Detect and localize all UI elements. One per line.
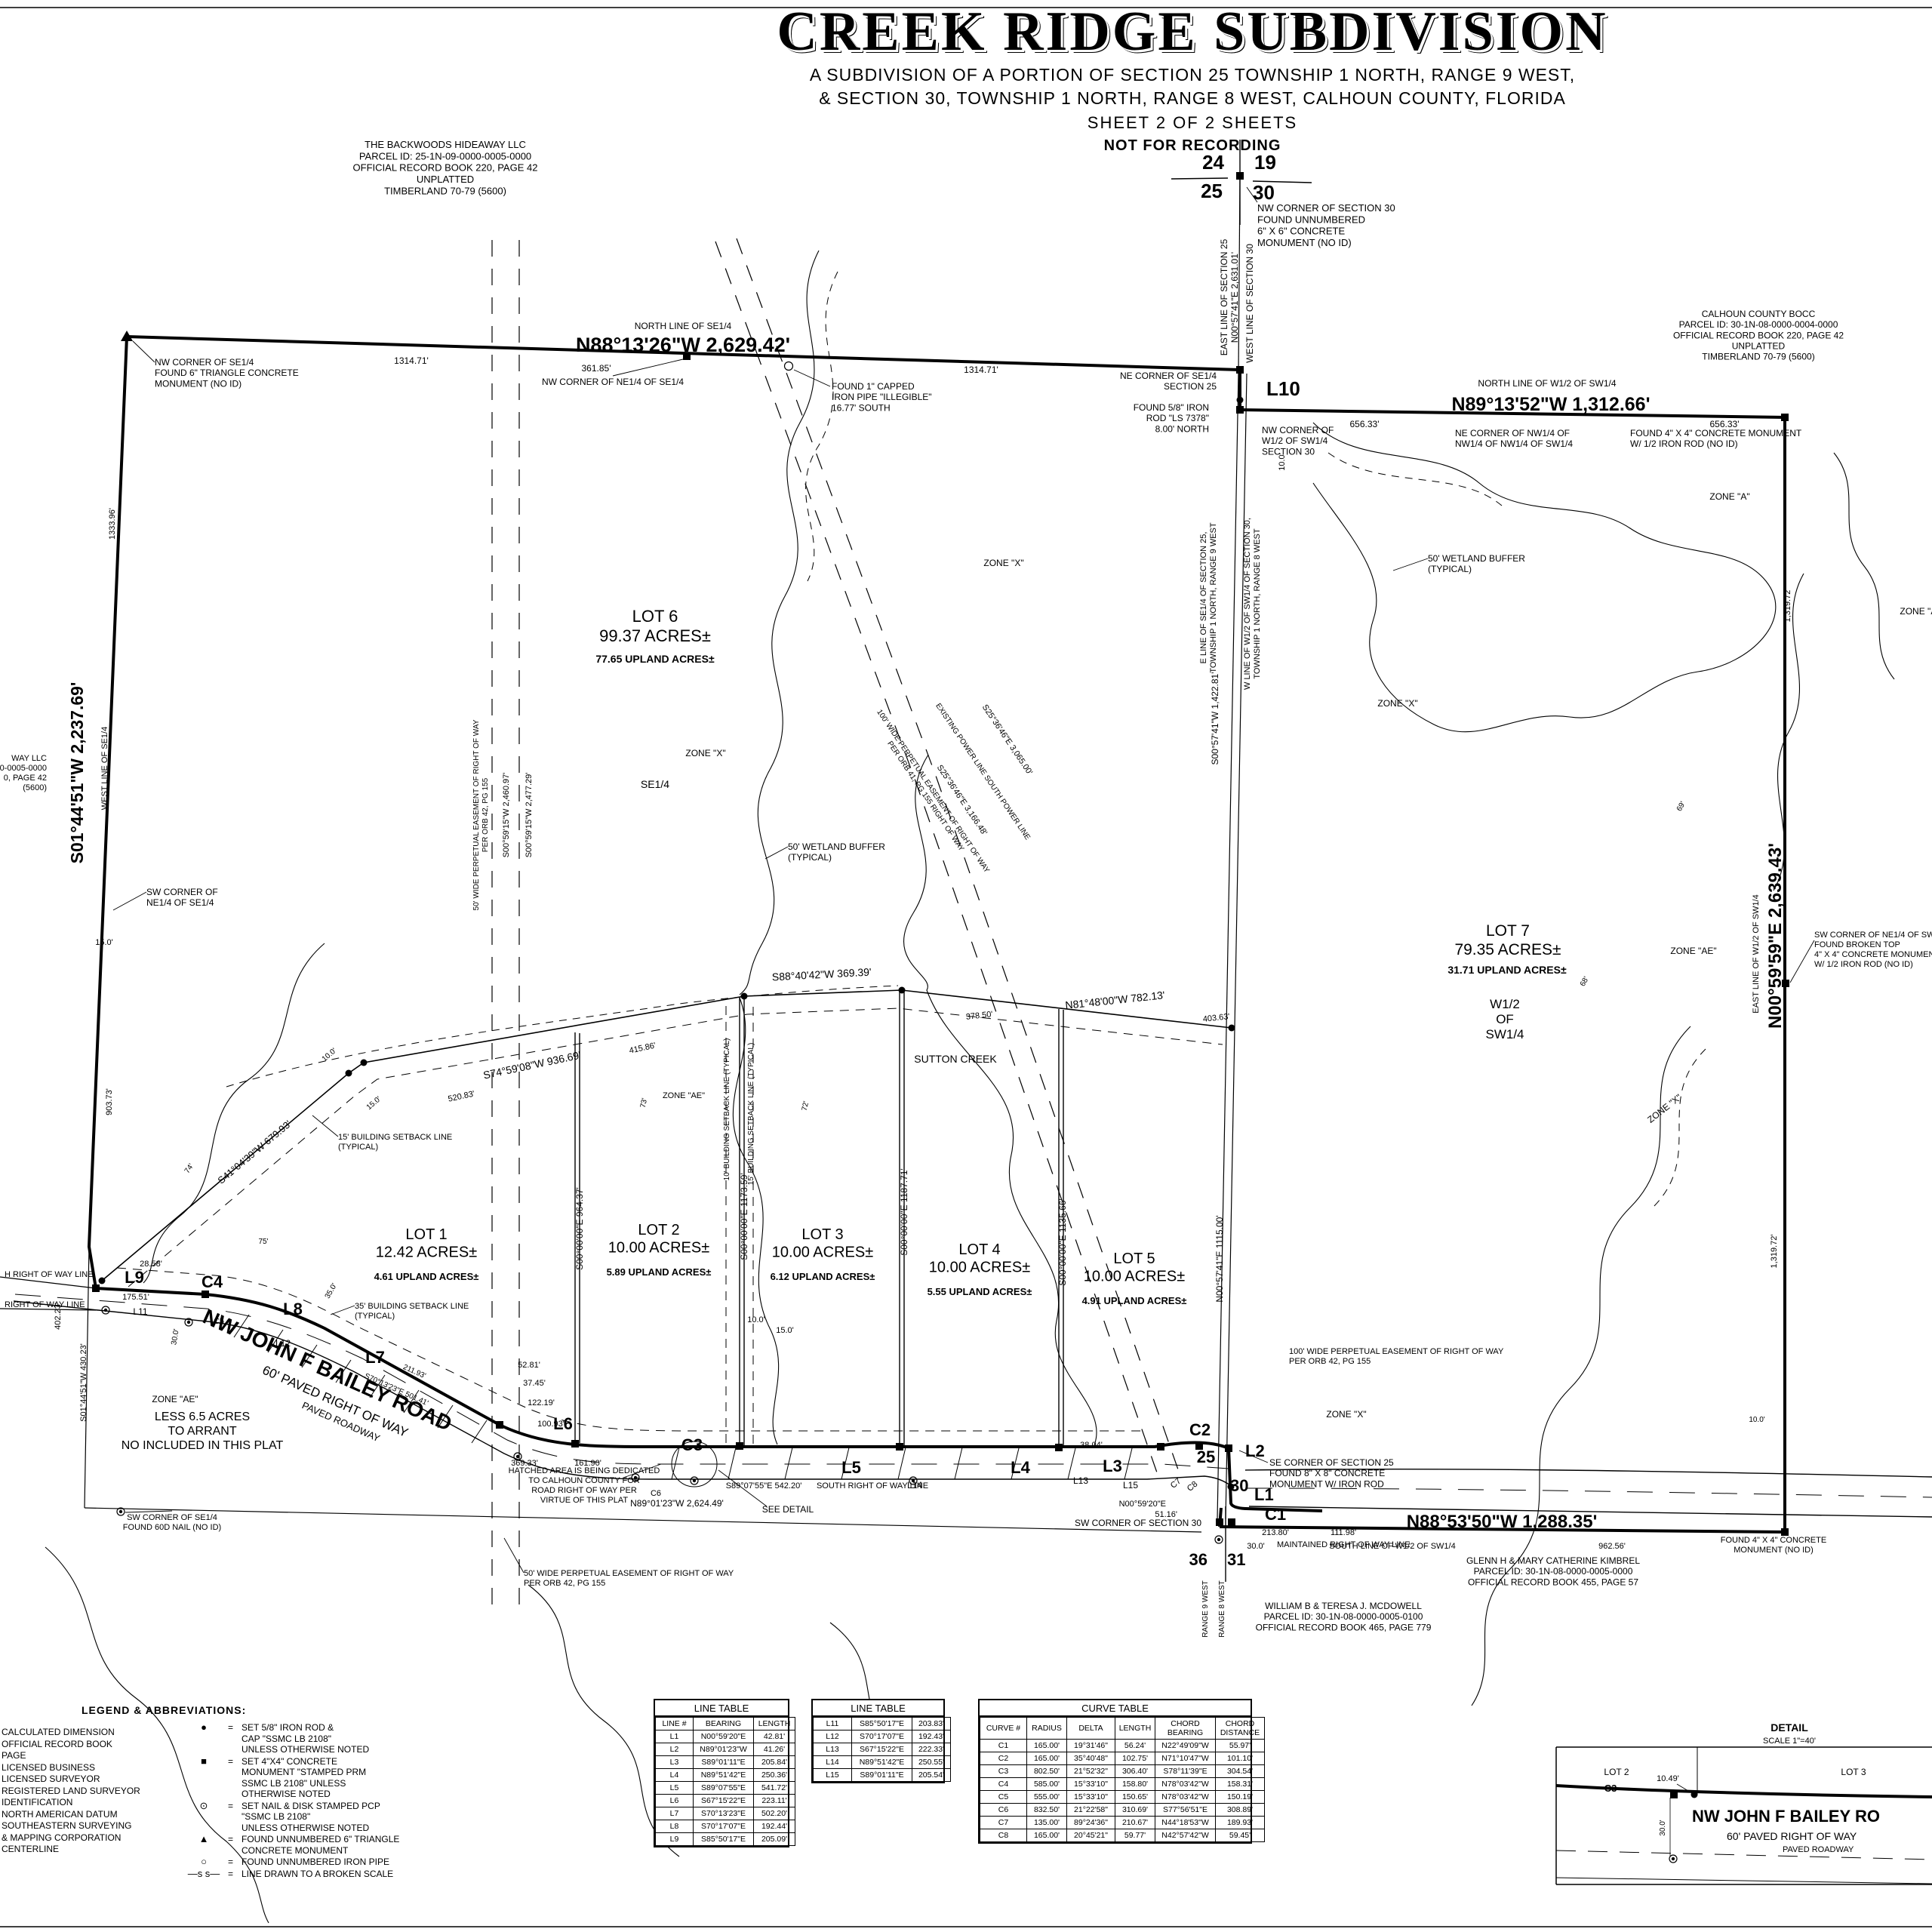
map-label: 74' [183, 1162, 196, 1175]
map-label-line: 361.85' [582, 363, 611, 374]
tr: L8S70°17'07"E192.44' [656, 1820, 795, 1833]
map-label-line: UNPLATTED [1732, 340, 1786, 351]
table-cell: 158.31' [1216, 1778, 1265, 1791]
tr: L6S67°15'22"E223.11' [656, 1795, 795, 1807]
map-label-line: 903.73' [105, 1088, 114, 1115]
map-label-line: TIMBERLAND 70-79 (5600) [1702, 352, 1814, 362]
path [765, 847, 788, 859]
map-label-line: SW CORNER OF SE1/4 [127, 1513, 217, 1522]
map-label: S01°44'51"W 430.23' [79, 1343, 88, 1422]
map-label: NW CORNER OF SECTION 30FOUND UNNUMBERED6… [1257, 202, 1395, 248]
map-labels: THE BACKWOODS HIDEAWAY LLCPARCEL ID: 25-… [0, 139, 1932, 1854]
tr: C4585.00'15°33'10"158.80'N78°03'42"W158.… [980, 1778, 1265, 1791]
map-label: LOT 779.35 ACRES± [1454, 922, 1561, 958]
map-label-line: 10.00 ACRES± [772, 1244, 873, 1261]
concrete-monument-icon [1228, 1518, 1235, 1526]
map-label-line: N00°57'41"E 2,631.01' [1229, 252, 1240, 343]
map-label: 4.61 UPLAND ACRES± [374, 1271, 479, 1282]
map-label-line: 16.77' SOUTH [832, 402, 891, 413]
table-header-cell: RADIUS [1027, 1718, 1067, 1740]
table-cell: L14 [814, 1756, 852, 1769]
table-cell: 223.11' [754, 1795, 795, 1807]
map-label-line: 50' WIDE PERPETUAL EASEMENT OF RIGHT OF … [472, 719, 481, 910]
path [1393, 558, 1428, 571]
map-label: 72' [801, 1100, 811, 1112]
tr: C6832.50'21°22'58"310.69'S77°56'51"E308.… [980, 1804, 1265, 1817]
table-cell: L8 [656, 1820, 694, 1833]
table-cell: 205.09' [754, 1833, 795, 1846]
legend-symbol-text: LINE DRAWN TO A BROKEN SCALE [241, 1869, 451, 1880]
map-label: L12 [275, 1338, 291, 1349]
map-label-line: 4.91 UPLAND ACRES± [1082, 1295, 1187, 1306]
map-label-line: L11 [133, 1306, 147, 1317]
map-label: FOUND 4" X 4" CONCRETE MONUMENTW/ 1/2 IR… [1630, 428, 1802, 449]
tr: L2N89°01'23"W41.26' [656, 1743, 795, 1756]
tr: L7S70°13'23"E502.20' [656, 1807, 795, 1820]
map-label-line: NE1/4 OF SE1/4 [146, 897, 214, 908]
legend-symbol-text: SET NAIL & DISK STAMPED PCP "SSMC LB 210… [241, 1801, 451, 1834]
map-label: 15' BUILDING SETBACK LINE(TYPICAL) [338, 1133, 452, 1152]
table-cell: 306.40' [1115, 1765, 1155, 1778]
map-label-line: 30.0' [1247, 1542, 1265, 1551]
map-label: 10' BUILDING SETBACK LINE (TYPICAL) [723, 1038, 731, 1181]
map-label-line: 30 [1230, 1476, 1248, 1495]
table-cell: 541.72' [754, 1782, 795, 1795]
map-label: 30.0' [1247, 1542, 1265, 1551]
map-label-line: NE CORNER OF SE1/4 [1120, 371, 1217, 381]
concrete-monument-icon [1157, 1443, 1164, 1451]
map-label-line: 10.0' [1278, 453, 1287, 471]
map-label-line: 79.35 ACRES± [1454, 941, 1561, 958]
map-label-line: 415.86' [629, 1041, 657, 1055]
map-label: NORTH LINE OF SE1/4 [635, 321, 732, 331]
path [312, 1115, 338, 1137]
map-label: L4 [1011, 1458, 1030, 1477]
map-label: SW CORNER OF SECTION 30 [1075, 1518, 1201, 1528]
map-label-line: S00°59'15"W 2,477.29' [525, 773, 534, 858]
table-cell: 150.19' [1216, 1791, 1265, 1804]
map-label: 60' PAVED RIGHT OF WAY [1727, 1830, 1857, 1842]
map-label-line: S74°59'08"W 936.69' [482, 1049, 582, 1081]
map-label-line: ZONE "X" [1326, 1409, 1366, 1420]
map-label-line: PER ORB 42, PG 155 [1289, 1357, 1371, 1366]
map-label: 10.0' [321, 1047, 339, 1063]
map-label-line: S01°44'51"W 2,237.69' [67, 682, 87, 864]
map-label-line: 4" X 4" CONCRETE MONUMENT [1814, 950, 1932, 959]
table-title: LINE TABLE [655, 1700, 788, 1717]
map-label: 656.33' [1350, 419, 1380, 429]
map-label-line: OFFICIAL RECORD BOOK 220, PAGE 42 [353, 162, 538, 174]
map-label-line: L8 [283, 1300, 303, 1318]
map-label-line: 50' WETLAND BUFFER [788, 841, 885, 852]
map-label-line: L13 [1073, 1475, 1088, 1486]
map-label: 25 [1197, 1447, 1215, 1466]
map-label: L13 [1073, 1475, 1088, 1486]
map-label: 30.0' [1659, 1820, 1667, 1835]
map-label: C4 [202, 1272, 223, 1291]
legend: LEGEND & ABBREVIATIONS: CALCULATED DIMEN… [2, 1704, 454, 1722]
creek-path [1834, 453, 1894, 679]
map-label-line: 25 [1201, 180, 1223, 202]
path [794, 370, 830, 386]
table-title: LINE TABLE [813, 1700, 943, 1717]
map-label-line: UNPLATTED [417, 174, 474, 185]
wetland-dashed [1653, 1049, 1706, 1207]
map-label-line: 35' BUILDING SETBACK LINE [355, 1302, 469, 1311]
map-label-line: L5 [841, 1458, 861, 1477]
map-label-line: N81°48'00"W 782.13' [1065, 989, 1166, 1011]
map-label-line: DETAIL [1770, 1721, 1808, 1734]
map-label: LOT 112.42 ACRES± [376, 1226, 477, 1261]
table-cell: N71°10'47"W [1155, 1752, 1216, 1765]
map-label-line: NORTH LINE OF W1/2 OF SW1/4 [1478, 378, 1616, 389]
break-line-icon: —ѕ ѕ— [180, 1869, 228, 1879]
map-label: 38.04' [1080, 1441, 1103, 1450]
map-label: N89°01'23"W 2,624.49' [630, 1498, 724, 1509]
iron-pipe-icon [785, 362, 793, 371]
legend-abbreviation: PAGE [2, 1750, 190, 1762]
table-cell: N89°01'23"W [694, 1743, 754, 1756]
legend-symbols: ●=SET 5/8" IRON ROD & CAP "SSMC LB 2108"… [180, 1722, 451, 1880]
legend-abbreviation: SOUTHEASTERN SURVEYING [2, 1820, 190, 1832]
map-label: 962.56' [1598, 1542, 1626, 1551]
tr: C2165.00'35°40'48"102.75'N71°10'47"W101.… [980, 1752, 1265, 1765]
map-label: SUTTON CREEK [914, 1053, 997, 1065]
creek-path [1313, 423, 1776, 732]
map-label: 111.98' [1331, 1528, 1356, 1537]
map-label-line: LOT 1 [405, 1226, 447, 1243]
equals-sign: = [228, 1834, 241, 1844]
legend-abbreviation: LICENSED SURVEYOR [2, 1774, 190, 1786]
map-label: C3 [681, 1435, 703, 1454]
map-label: 1,319.72' [1783, 589, 1792, 623]
map-label-line: NW CORNER OF SECTION 30 [1257, 202, 1395, 214]
table-cell: 585.00' [1027, 1778, 1067, 1791]
map-label-line: 8.00' NORTH [1155, 423, 1209, 434]
table-cell: 89°24'36" [1067, 1817, 1115, 1829]
tr: C5555.00'15°33'10"150.65'N78°03'42"W150.… [980, 1791, 1265, 1804]
iron-rod-icon [741, 993, 748, 1000]
concrete-monument-icon [1225, 1444, 1232, 1452]
table-cell: C7 [980, 1817, 1027, 1829]
map-label-line: 10.00 ACRES± [929, 1260, 1030, 1276]
table-cell: 555.00' [1027, 1791, 1067, 1804]
table-cell: 135.00' [1027, 1817, 1067, 1829]
map-label: RANGE 8 WEST [1218, 1580, 1226, 1638]
map-label: ZONE "AE" [152, 1394, 198, 1404]
map-label-line: W LINE OF W1/2 OF SW1/4 OF SECTION 30, [1243, 518, 1252, 690]
map-label-line: SCALE 1"=40' [1763, 1737, 1816, 1746]
table: CURVE #RADIUSDELTALENGTHCHORD BEARINGCHO… [980, 1717, 1265, 1842]
wetland-dashed [226, 986, 898, 1087]
map-label-line: PARCEL ID: 30-1N-08-0000-0005-0100 [1264, 1611, 1423, 1622]
map-label-line: 73' [639, 1097, 649, 1109]
map-label: L5 [841, 1458, 861, 1477]
map-label-line: 1314.71' [964, 365, 998, 375]
map-label: 69' [1675, 800, 1687, 813]
map-label-line: LESS 6.5 ACRES [155, 1411, 250, 1423]
map-label: L3 [1103, 1457, 1122, 1475]
legend-abbreviation: LICENSED BUSINESS [2, 1762, 190, 1774]
map-label: 77.65 UPLAND ACRES± [595, 653, 715, 665]
concrete-monument-icon [896, 1443, 903, 1451]
circle [516, 1455, 518, 1457]
map-label-line: NW1/4 OF NW1/4 OF SW1/4 [1455, 438, 1573, 449]
map-label-line: GLENN H & MARY CATHERINE KIMBREL [1466, 1555, 1640, 1566]
tr: C3802.50'21°52'32"306.40'S78°11'39"E304.… [980, 1765, 1265, 1778]
map-label: 161.90' [574, 1459, 601, 1468]
road-east-center [1247, 1488, 1932, 1497]
map-label: WAY LLC0-0005-00000, PAGE 42(5600) [0, 754, 47, 792]
table-cell: 250.36' [754, 1769, 795, 1782]
map-label: SCALE 1"=40' [1763, 1737, 1816, 1746]
map-label: NE CORNER OF SE1/4SECTION 25 [1120, 371, 1217, 392]
map-label-line: L9 [125, 1268, 144, 1287]
map-label-line: S00°00'00"E 1173.59' [739, 1173, 749, 1260]
open-circle-icon: ○ [180, 1857, 228, 1867]
map-label-line: N89°13'52"W 1,312.66' [1451, 394, 1650, 415]
map-label-line: SOUTH LINE OF W1/2 OF SW1/4 [1329, 1542, 1455, 1551]
map-label: RIGHT OF WAY LINE [5, 1300, 85, 1309]
path [1068, 1448, 1075, 1479]
table-cell: C1 [980, 1740, 1027, 1752]
tr: L15S89°01'11"E205.54' [814, 1769, 951, 1782]
plat-drawing: THE BACKWOODS HIDEAWAY LLCPARCEL ID: 25-… [0, 0, 1932, 1932]
table-cell: L5 [656, 1782, 694, 1795]
table-cell: C4 [980, 1778, 1027, 1791]
table-cell: 203.83' [912, 1718, 951, 1730]
legend-symbol-row: ▲=FOUND UNNUMBERED 6" TRIANGLE CONCRETE … [180, 1834, 451, 1856]
map-label-line: C3 [681, 1435, 703, 1454]
map-label-line: LOT 3 [801, 1226, 843, 1243]
map-label-line: SEE DETAIL [762, 1504, 814, 1515]
concrete-monument-icon [1781, 414, 1789, 421]
map-label: 36 [1189, 1550, 1207, 1569]
table-cell: 19°31'46" [1067, 1740, 1115, 1752]
concrete-monument-icon [571, 1440, 579, 1447]
table-cell: C2 [980, 1752, 1027, 1765]
map-label: SOUTH RIGHT OF WAY LINE [817, 1481, 928, 1491]
map-label-line: 36 [1189, 1550, 1207, 1569]
map-label-line: PARCEL ID: 30-1N-08-0000-0005-0000 [1474, 1566, 1633, 1577]
table-cell: S70°13'23"E [694, 1807, 754, 1820]
map-label-line: FOUND 8" X 8" CONCRETE [1269, 1468, 1385, 1478]
map-label-line: SOUTH RIGHT OF WAY LINE [817, 1481, 928, 1491]
map-label: 520.83' [448, 1089, 475, 1103]
map-label: 75' [258, 1238, 268, 1246]
map-label-line: 1314.71' [394, 355, 429, 366]
legend-symbol-row: —ѕ ѕ—=LINE DRAWN TO A BROKEN SCALE [180, 1869, 451, 1880]
legend-symbol-row: ⊙=SET NAIL & DISK STAMPED PCP "SSMC LB 2… [180, 1801, 451, 1834]
table-header-cell: CHORD BEARING [1155, 1718, 1216, 1740]
map-label-line: 15' BUILDING SETBACK LINE (TYPICAL) [747, 1043, 755, 1186]
map-label-line: S25°36'46"E 3,065.00' [980, 703, 1034, 777]
sheet-border [0, 8, 1932, 1927]
map-label-line: 161.90' [574, 1459, 601, 1468]
map-label-line: 1,319.72' [1783, 589, 1792, 623]
map-label: LOT 310.00 ACRES± [772, 1226, 873, 1261]
table-cell: L13 [814, 1743, 852, 1756]
map-label: 35' BUILDING SETBACK LINE(TYPICAL) [355, 1302, 469, 1321]
map-label-line: (5600) [23, 783, 47, 792]
map-label-line: S41°04'39"W 679.93' [215, 1118, 293, 1186]
map-label: CALHOUN COUNTY BOCCPARCEL ID: 30-1N-08-0… [1673, 309, 1844, 362]
map-label-line: SECTION 30 [1262, 446, 1315, 457]
map-label: L7 [365, 1348, 385, 1367]
map-label: S01°44'51"W 2,237.69' [67, 682, 87, 864]
legend-abbreviation: OFFICIAL RECORD BOOK [2, 1739, 190, 1751]
map-label-line: 52.81' [518, 1361, 540, 1370]
table-cell: L2 [656, 1743, 694, 1756]
map-label-line: 99.37 ACRES± [599, 626, 711, 645]
map-label-line: SW CORNER OF SECTION 30 [1075, 1518, 1201, 1528]
map-label-line: 5.55 UPLAND ACRES± [928, 1286, 1032, 1297]
map-label-line: RIGHT OF WAY LINE [5, 1300, 85, 1309]
map-label: 5.55 UPLAND ACRES± [928, 1286, 1032, 1297]
map-label-line: FOUND BROKEN TOP [1814, 940, 1900, 949]
map-label-line: SE1/4 [641, 778, 669, 790]
map-label-line: L10 [1266, 377, 1300, 400]
map-label-line: NE CORNER OF NW1/4 OF [1455, 428, 1570, 438]
creek-path [904, 755, 1097, 1445]
map-label: S74°59'08"W 936.69' [482, 1049, 582, 1081]
table-cell: 20°45'21" [1067, 1829, 1115, 1842]
map-label-line: 75' [258, 1238, 268, 1246]
map-label-line: LOT 2 [1604, 1767, 1629, 1777]
table-cell: L12 [814, 1730, 852, 1743]
map-label-line: LOT 4 [958, 1241, 1000, 1258]
map-label-line: MONUMENT (NO ID) [1734, 1546, 1814, 1555]
iron-rod-icon [99, 1278, 106, 1284]
table-cell: S89°01'11"E [694, 1756, 754, 1769]
map-label-line: 520.83' [448, 1089, 475, 1103]
map-label: S00°59'15"W 2,460.97' [502, 773, 511, 858]
map-label-line: S00°57'41"W 1,422.81' [1210, 672, 1220, 764]
map-label-line: LOT 3 [1841, 1767, 1866, 1777]
circle [693, 1479, 695, 1481]
map-label: N00°59'20"E [1119, 1500, 1166, 1509]
map-label: 25 [1201, 180, 1223, 202]
map-label-line: 31 [1227, 1550, 1245, 1569]
table-cell: 304.54' [1216, 1765, 1265, 1778]
monument-dots [99, 397, 1698, 1798]
concrete-monument-icon [1781, 1528, 1789, 1536]
map-label-line: NW CORNER OF NE1/4 OF SE1/4 [542, 377, 684, 387]
map-label-line: ZONE "X" [1377, 698, 1417, 709]
map-label-line: 10.0' [1749, 1416, 1764, 1424]
table-cell: S70°17'07"E [694, 1820, 754, 1833]
map-label-line: SW CORNER OF NE1/4 OF SW1/4 [1814, 931, 1932, 940]
sheet-number: SHEET 2 OF 2 SHEETS [679, 113, 1706, 133]
map-label-line: THE BACKWOODS HIDEAWAY LLC [365, 139, 526, 150]
table-header-cell: LINE # [656, 1718, 694, 1730]
monument-squares [92, 172, 1789, 1798]
iron-rod-icon [361, 1060, 368, 1066]
map-label-line: C6 [651, 1489, 661, 1498]
path [331, 1306, 355, 1315]
map-label-line: 175.51' [122, 1293, 149, 1302]
map-label: SW CORNER OFNE1/4 OF SE1/4 [146, 887, 218, 908]
map-label-line: FOUND 5/8" IRON [1134, 402, 1209, 413]
monument-open-circles [785, 362, 793, 371]
table-cell: S85°50'17"E [852, 1718, 912, 1730]
map-label-line: 37.45' [523, 1379, 546, 1388]
table-cell: L3 [656, 1756, 694, 1769]
map-label-line: L12 [275, 1338, 291, 1349]
map-label: NW CORNER OF NE1/4 OF SE1/4 [542, 377, 684, 387]
table-cell: N78°03'42"W [1155, 1778, 1216, 1791]
map-label: GLENN H & MARY CATHERINE KIMBRELPARCEL I… [1466, 1555, 1640, 1587]
map-label: NW CORNER OFW1/2 OF SW1/4SECTION 30 [1262, 425, 1334, 457]
map-label-line: TOWNSHIP 1 NORTH, RANGE 8 WEST [1253, 528, 1262, 679]
map-label-line: FOUND UNNUMBERED [1257, 214, 1365, 225]
page-title: CREEK RIDGE SUBDIVISION [679, 3, 1706, 62]
map-label-line: 10.00 ACRES± [1084, 1269, 1185, 1285]
path [1171, 178, 1228, 179]
table-cell: 192.44' [754, 1820, 795, 1833]
map-label-line: 402.23' [54, 1303, 63, 1330]
table-header-cell: CHORD DISTANCE [1216, 1718, 1265, 1740]
table-cell: 222.33' [912, 1743, 951, 1756]
legend-abbreviation: CALCULATED DIMENSION [2, 1727, 190, 1739]
table-cell: 15°33'10" [1067, 1778, 1115, 1791]
map-label: SOUTH LINE OF W1/2 OF SW1/4 [1329, 1542, 1455, 1551]
map-label: C8 [1186, 1480, 1199, 1494]
legend-symbol-row: ●=SET 5/8" IRON ROD & CAP "SSMC LB 2108"… [180, 1722, 451, 1755]
map-label-line: 122.19' [528, 1398, 555, 1407]
table-cell: S78°11'39"E [1155, 1765, 1216, 1778]
map-label: FOUND 5/8" IRONROD "LS 7378"8.00' NORTH [1134, 402, 1209, 434]
table-cell: 59.45' [1216, 1829, 1265, 1842]
table-cell: 165.00' [1027, 1829, 1067, 1842]
map-label: 50' WIDE PERPETUAL EASEMENT OF RIGHT OF … [472, 719, 490, 910]
map-label-line: 656.33' [1350, 419, 1380, 429]
map-label: 31 [1227, 1550, 1245, 1569]
table-cell: 55.97' [1216, 1740, 1265, 1752]
table-cell: 192.43' [912, 1730, 951, 1743]
map-label: L10 [1266, 377, 1300, 400]
map-label-line: C2 [1189, 1420, 1211, 1439]
map-label: ZONE "X" [1377, 698, 1417, 709]
map-label-line: MONUMENT (NO ID) [155, 378, 241, 389]
map-label-line: L7 [365, 1348, 385, 1367]
map-label-line: ZONE "X" [983, 558, 1023, 568]
filled-triangle-icon: ▲ [180, 1834, 228, 1844]
map-label-line: PER ORB 42, PG 155 [524, 1579, 605, 1588]
equals-sign: = [228, 1756, 241, 1767]
map-label-line: MONUMENT W/ IRON ROD [1269, 1478, 1384, 1489]
map-label: 15.0' [365, 1095, 383, 1112]
map-label-line: C7 [1169, 1477, 1183, 1491]
map-label-line: ZONE "AE" [152, 1394, 198, 1404]
map-label: S00°00'00"E 1187.71' [899, 1168, 909, 1256]
table-cell: 832.50' [1027, 1804, 1067, 1817]
creek-path [143, 943, 325, 1283]
table-cell: 250.55' [912, 1756, 951, 1769]
map-label: 402.23' [54, 1303, 63, 1330]
circle [1217, 1538, 1220, 1540]
table-cell: N78°03'42"W [1155, 1791, 1216, 1804]
map-label-line: 25 [1197, 1447, 1215, 1466]
map-label-line: WEST LINE OF SECTION 30 [1244, 244, 1255, 363]
curve-table: CURVE TABLECURVE #RADIUSDELTALENGTHCHORD… [978, 1699, 1252, 1844]
map-label-line: L3 [1103, 1457, 1122, 1475]
map-label-line: 0-0005-0000 [0, 764, 47, 773]
map-label-line: NW CORNER OF [1262, 425, 1334, 435]
creek-path [740, 251, 819, 995]
map-label-line: SUTTON CREEK [914, 1053, 997, 1065]
map-label: 50' WETLAND BUFFER(TYPICAL) [1428, 553, 1525, 574]
